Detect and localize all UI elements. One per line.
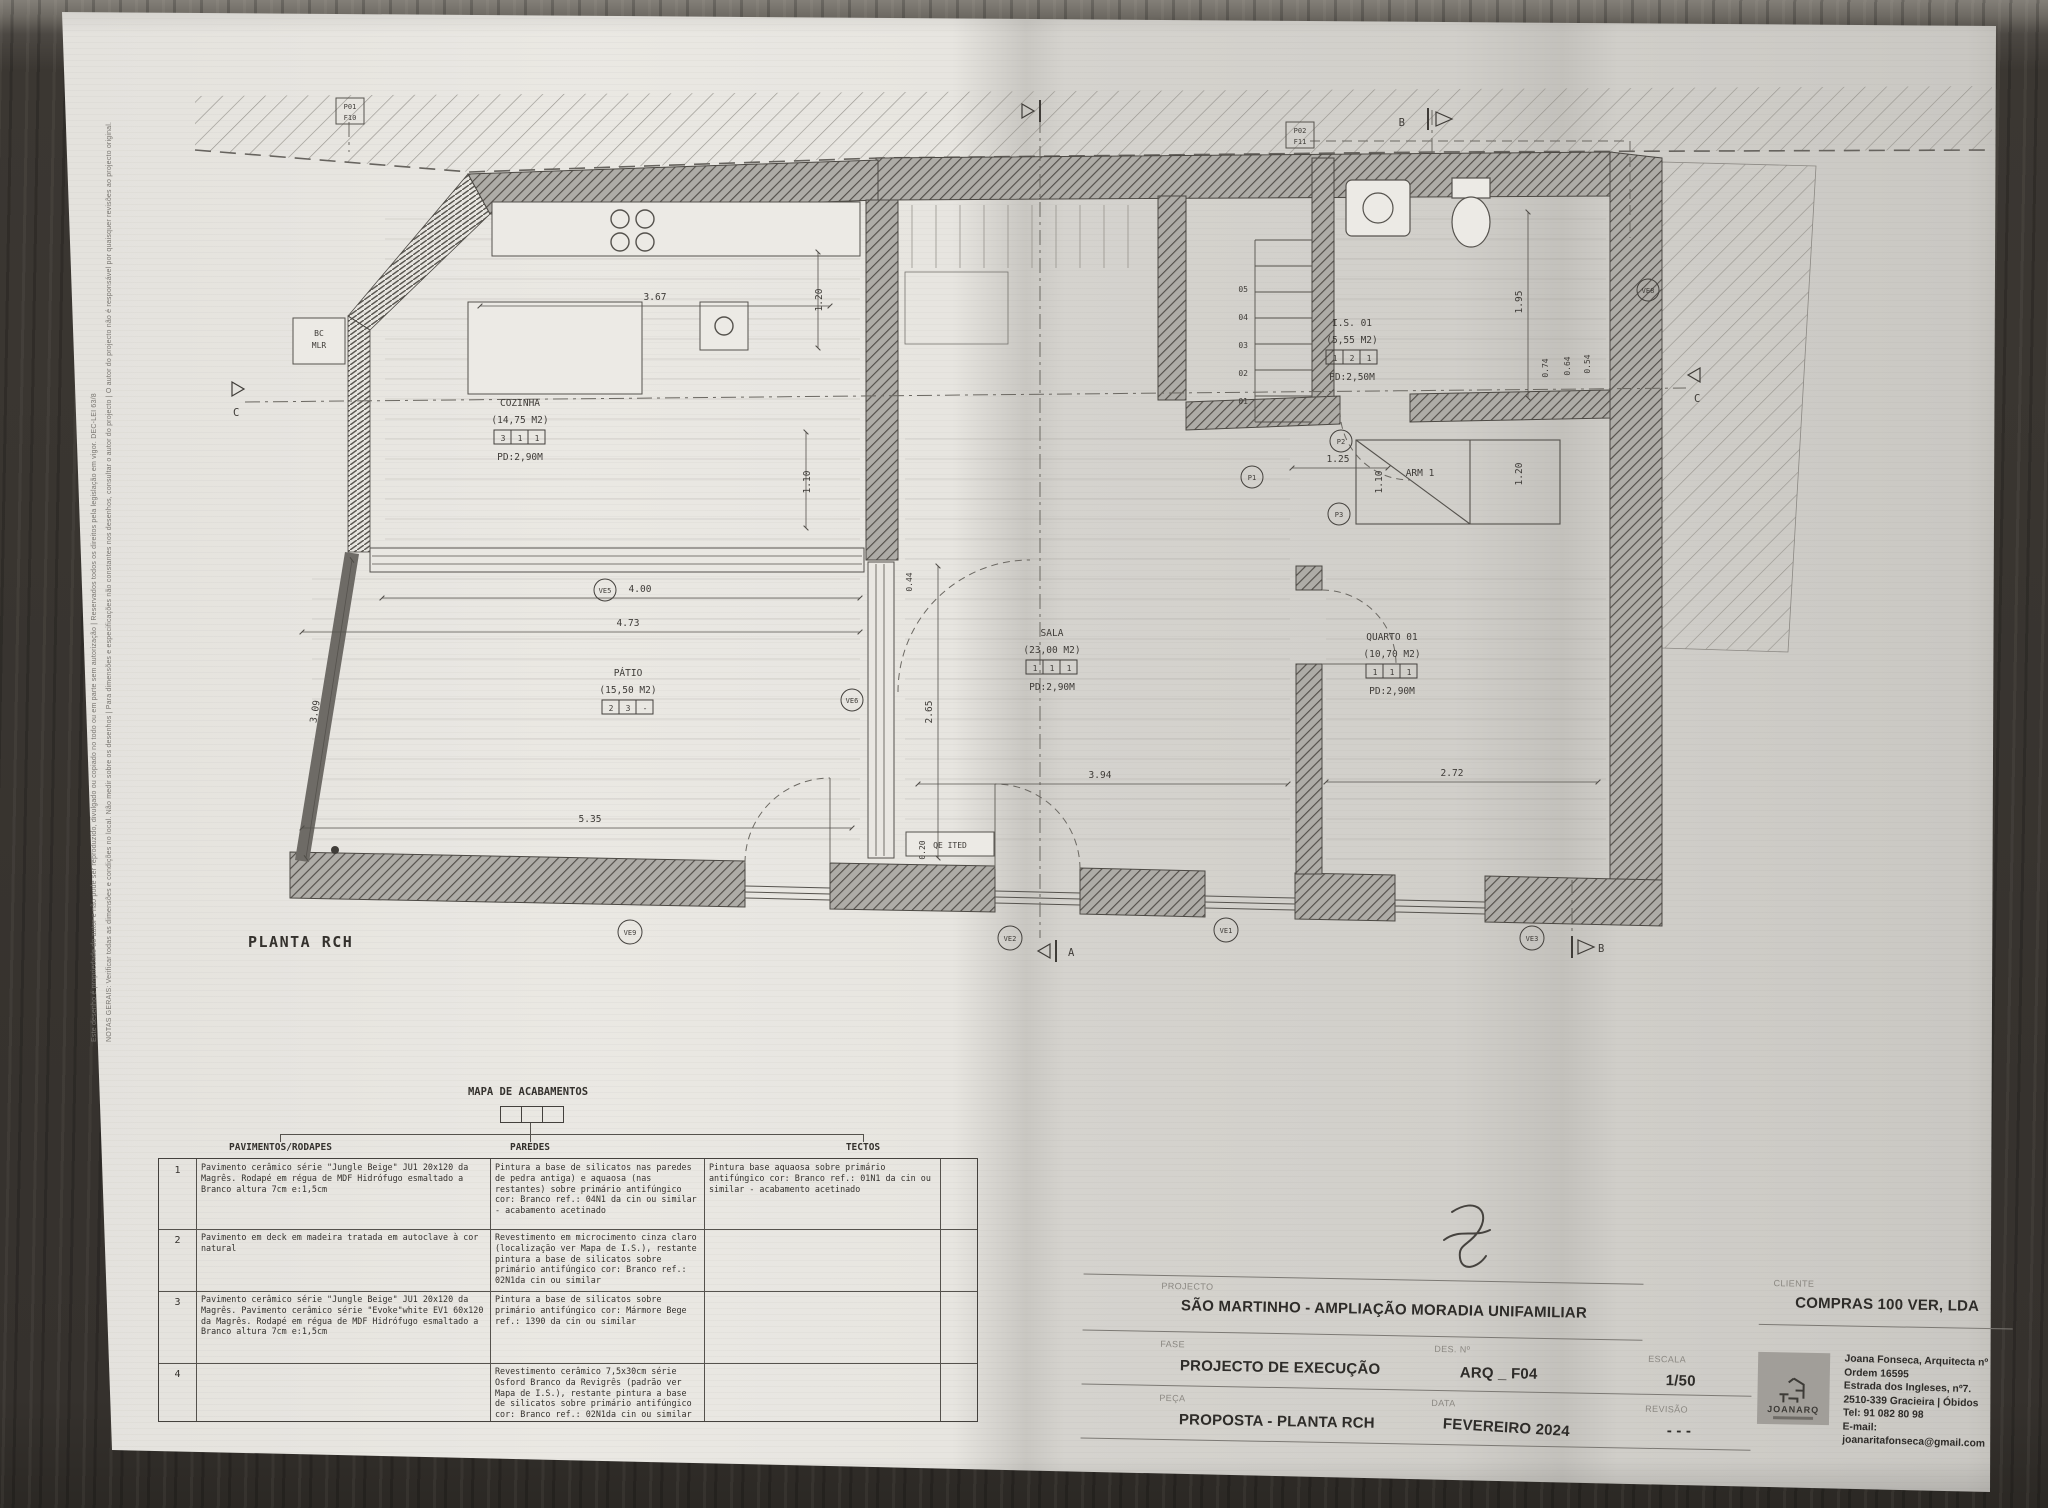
svg-text:VE8: VE8: [1642, 287, 1655, 295]
svg-text:1: 1: [1407, 668, 1412, 677]
svg-text:VE9: VE9: [624, 929, 637, 937]
svg-text:P3: P3: [1335, 511, 1343, 519]
contact-line: E-mail: joanaritafonseca@gmail.com: [1842, 1420, 2021, 1452]
svg-text:F10: F10: [344, 114, 357, 122]
finishes-table: MAPA DE ACABAMENTOS PAVIMENTOS/RODAPES P…: [158, 1080, 978, 1428]
data-label: DATA: [1431, 1398, 1455, 1408]
bc-mlr-room: BC MLR: [293, 318, 345, 364]
svg-text:3.94: 3.94: [1089, 770, 1112, 781]
svg-text:02: 02: [1238, 369, 1248, 378]
plan-title: PLANTA RCH: [248, 933, 353, 951]
escala-label: ESCALA: [1648, 1354, 1686, 1365]
svg-text:P02: P02: [1294, 127, 1307, 135]
finishes-legend-boxes: [500, 1106, 564, 1123]
svg-text:BC: BC: [314, 329, 324, 338]
svg-text:P1: P1: [1248, 474, 1256, 482]
finishes-grid: 1 2 3 4 Pavimento cerâmico série "Jungle…: [158, 1158, 978, 1422]
peca-label: PEÇA: [1159, 1393, 1185, 1403]
svg-text:VE6: VE6: [846, 697, 859, 705]
svg-text:0.20: 0.20: [918, 840, 927, 859]
svg-text:1.20: 1.20: [814, 288, 825, 311]
cliente-value: COMPRAS 100 VER, LDA: [1795, 1295, 1979, 1315]
cell-paredes: Revestimento em microcimento cinza claro…: [490, 1229, 704, 1291]
svg-text:2.72: 2.72: [1441, 768, 1464, 779]
svg-text:COZINHA: COZINHA: [500, 398, 540, 409]
svg-text:PD:2,50M: PD:2,50M: [1329, 372, 1375, 383]
svg-text:VE2: VE2: [1004, 935, 1017, 943]
svg-text:C: C: [1694, 393, 1700, 405]
projecto-label: PROJECTO: [1161, 1281, 1213, 1292]
svg-text:(14,75 M2): (14,75 M2): [491, 415, 548, 426]
svg-text:P01: P01: [344, 103, 357, 111]
svg-text:1: 1: [1333, 354, 1338, 363]
row-number: 4: [159, 1363, 196, 1385]
fase-value: PROJECTO DE EXECUÇÃO: [1180, 1357, 1381, 1378]
svg-text:05: 05: [1238, 285, 1248, 294]
title-block: PROJECTO SÃO MARTINHO - AMPLIAÇÃO MORADI…: [1080, 1253, 2014, 1475]
svg-text:B: B: [1598, 943, 1604, 955]
row-number: 1: [159, 1159, 196, 1181]
svg-text:PÁTIO: PÁTIO: [614, 667, 643, 679]
photo-of-floor-plan: { "plan": { "title": "PLANTA RCH", "room…: [0, 0, 2048, 1508]
row-number: 3: [159, 1291, 196, 1313]
svg-text:QUARTO 01: QUARTO 01: [1366, 632, 1418, 643]
finishes-table-title: MAPA DE ACABAMENTOS: [408, 1086, 648, 1098]
revisao-label: REVISÃO: [1645, 1404, 1688, 1415]
svg-text:(23,00 M2): (23,00 M2): [1023, 645, 1080, 656]
svg-text:1: 1: [1033, 664, 1038, 673]
svg-text:B: B: [1399, 117, 1405, 129]
svg-text:1: 1: [1373, 668, 1378, 677]
general-notes-line2: Este desenho é propriedade do autor e nã…: [91, 393, 98, 1042]
room-label-cozinha: COZINHA (14,75 M2) 3 1 1 PD:2,90M: [491, 398, 548, 463]
cliente-label: CLIENTE: [1773, 1278, 1814, 1289]
svg-text:03: 03: [1238, 341, 1248, 350]
svg-text:(15,50 M2): (15,50 M2): [599, 685, 656, 696]
svg-text:2.65: 2.65: [924, 701, 935, 724]
cell-pavimentos: Pavimento em deck em madeira tratada em …: [196, 1229, 490, 1291]
cell-tectos: [704, 1229, 940, 1291]
arm-label: ARM 1: [1406, 468, 1435, 479]
cell-paredes: Pintura a base de silicatos nas paredes …: [490, 1159, 704, 1229]
svg-text:1: 1: [535, 434, 540, 443]
cell-tectos: Pintura base aquaosa sobre primário anti…: [704, 1159, 940, 1229]
svg-text:0.44: 0.44: [905, 572, 914, 591]
logo-name: JOANARQ: [1767, 1404, 1819, 1415]
cell-paredes: Pintura a base de silicatos sobre primár…: [490, 1291, 704, 1363]
svg-text:A: A: [1068, 947, 1075, 959]
section-marker-b-bottom: B: [1572, 936, 1604, 958]
svg-text:4.73: 4.73: [617, 618, 640, 629]
svg-text:1.10: 1.10: [1374, 470, 1385, 493]
svg-text:VE1: VE1: [1220, 927, 1233, 935]
svg-text:-: -: [643, 704, 648, 713]
svg-text:PD:2,90M: PD:2,90M: [497, 452, 543, 463]
svg-text:1.95: 1.95: [1514, 291, 1525, 314]
svg-text:I.S. 01: I.S. 01: [1332, 318, 1372, 329]
svg-text:0.64: 0.64: [1563, 356, 1572, 375]
svg-text:1.10: 1.10: [802, 470, 813, 493]
neighbour-hatch-right: [1662, 162, 1816, 652]
data-value: FEVEREIRO 2024: [1442, 1415, 1570, 1440]
svg-text:1.25: 1.25: [1327, 454, 1350, 465]
cell-tectos: [704, 1363, 940, 1421]
svg-text:3.67: 3.67: [644, 292, 667, 303]
des-label: DES. Nº: [1434, 1344, 1470, 1355]
svg-text:3: 3: [501, 434, 506, 443]
stair-numbers: 05 04 03 02 01: [1238, 285, 1248, 406]
svg-text:01: 01: [1238, 397, 1248, 406]
room-label-quarto: QUARTO 01 (10,70 M2) 1 1 1 PD:2,90M: [1363, 632, 1420, 697]
row-number: 2: [159, 1229, 196, 1251]
arm-closet: [1356, 440, 1560, 524]
svg-text:VE3: VE3: [1526, 935, 1539, 943]
svg-text:VE5: VE5: [599, 587, 612, 595]
room-label-is01: I.S. 01 (5,55 M2) 1 2 1 PD:2,50M: [1326, 318, 1378, 383]
svg-text:SALA: SALA: [1041, 628, 1064, 639]
svg-text:1: 1: [1067, 664, 1072, 673]
cell-tectos: [704, 1291, 940, 1363]
deck-slats: [905, 205, 1128, 344]
svg-text:F11: F11: [1294, 138, 1307, 146]
svg-text:PD:2,90M: PD:2,90M: [1029, 682, 1075, 693]
peca-value: PROPOSTA - PLANTA RCH: [1179, 1411, 1375, 1432]
svg-text:0.74: 0.74: [1541, 358, 1550, 377]
svg-text:(10,70 M2): (10,70 M2): [1363, 649, 1420, 660]
svg-text:MLR: MLR: [312, 341, 327, 350]
svg-text:P2: P2: [1337, 438, 1345, 446]
svg-text:2: 2: [1350, 354, 1355, 363]
cell-paredes: Revestimento cerâmico 7,5x30cm série Osf…: [490, 1363, 704, 1421]
col-header-paredes: PAREDES: [460, 1142, 600, 1153]
house-icon: [1775, 1374, 1812, 1405]
svg-text:4.00: 4.00: [629, 584, 652, 595]
svg-text:1: 1: [1050, 664, 1055, 673]
section-marker-c-left: C: [232, 382, 244, 419]
col-header-tectos: TECTOS: [793, 1142, 933, 1153]
revisao-value: - - -: [1667, 1422, 1692, 1439]
svg-text:1: 1: [1390, 668, 1395, 677]
svg-text:2: 2: [609, 704, 614, 713]
col-header-pavimentos: PAVIMENTOS/RODAPES: [188, 1142, 373, 1153]
svg-text:C: C: [233, 407, 239, 419]
projecto-value: SÃO MARTINHO - AMPLIAÇÃO MORADIA UNIFAMI…: [1181, 1297, 1661, 1323]
svg-text:1.20: 1.20: [1514, 462, 1525, 485]
svg-text:5.35: 5.35: [579, 814, 602, 825]
cell-pavimentos: Pavimento cerâmico série "Jungle Beige" …: [196, 1159, 490, 1229]
cell-pavimentos: [196, 1363, 490, 1421]
joanarq-logo: JOANARQ: [1757, 1352, 1830, 1425]
section-marker-a-bottom: A: [1038, 940, 1075, 962]
signature: [1444, 1205, 1490, 1266]
svg-text:1: 1: [1367, 354, 1372, 363]
svg-text:0.54: 0.54: [1583, 354, 1592, 373]
patio-drain: [331, 846, 339, 854]
general-notes-line1: NOTAS GERAIS: Verificar todas as dimensõ…: [106, 122, 113, 1042]
cell-pavimentos: Pavimento cerâmico série "Jungle Beige" …: [196, 1291, 490, 1363]
floor-texture: [312, 200, 1606, 868]
logo-tagline: [1773, 1416, 1813, 1420]
svg-text:1: 1: [518, 434, 523, 443]
escala-value: 1/50: [1666, 1372, 1696, 1390]
des-value: ARQ _ F04: [1460, 1364, 1538, 1382]
svg-text:(5,55 M2): (5,55 M2): [1326, 335, 1377, 346]
svg-text:3: 3: [626, 704, 631, 713]
stairs: [1255, 240, 1312, 422]
svg-text:PD:2,90M: PD:2,90M: [1369, 686, 1415, 697]
fase-label: FASE: [1160, 1339, 1185, 1349]
svg-text:04: 04: [1238, 313, 1248, 322]
architect-contact: Joana Fonseca, Arquitecta nº Ordem 16595…: [1842, 1353, 2023, 1453]
